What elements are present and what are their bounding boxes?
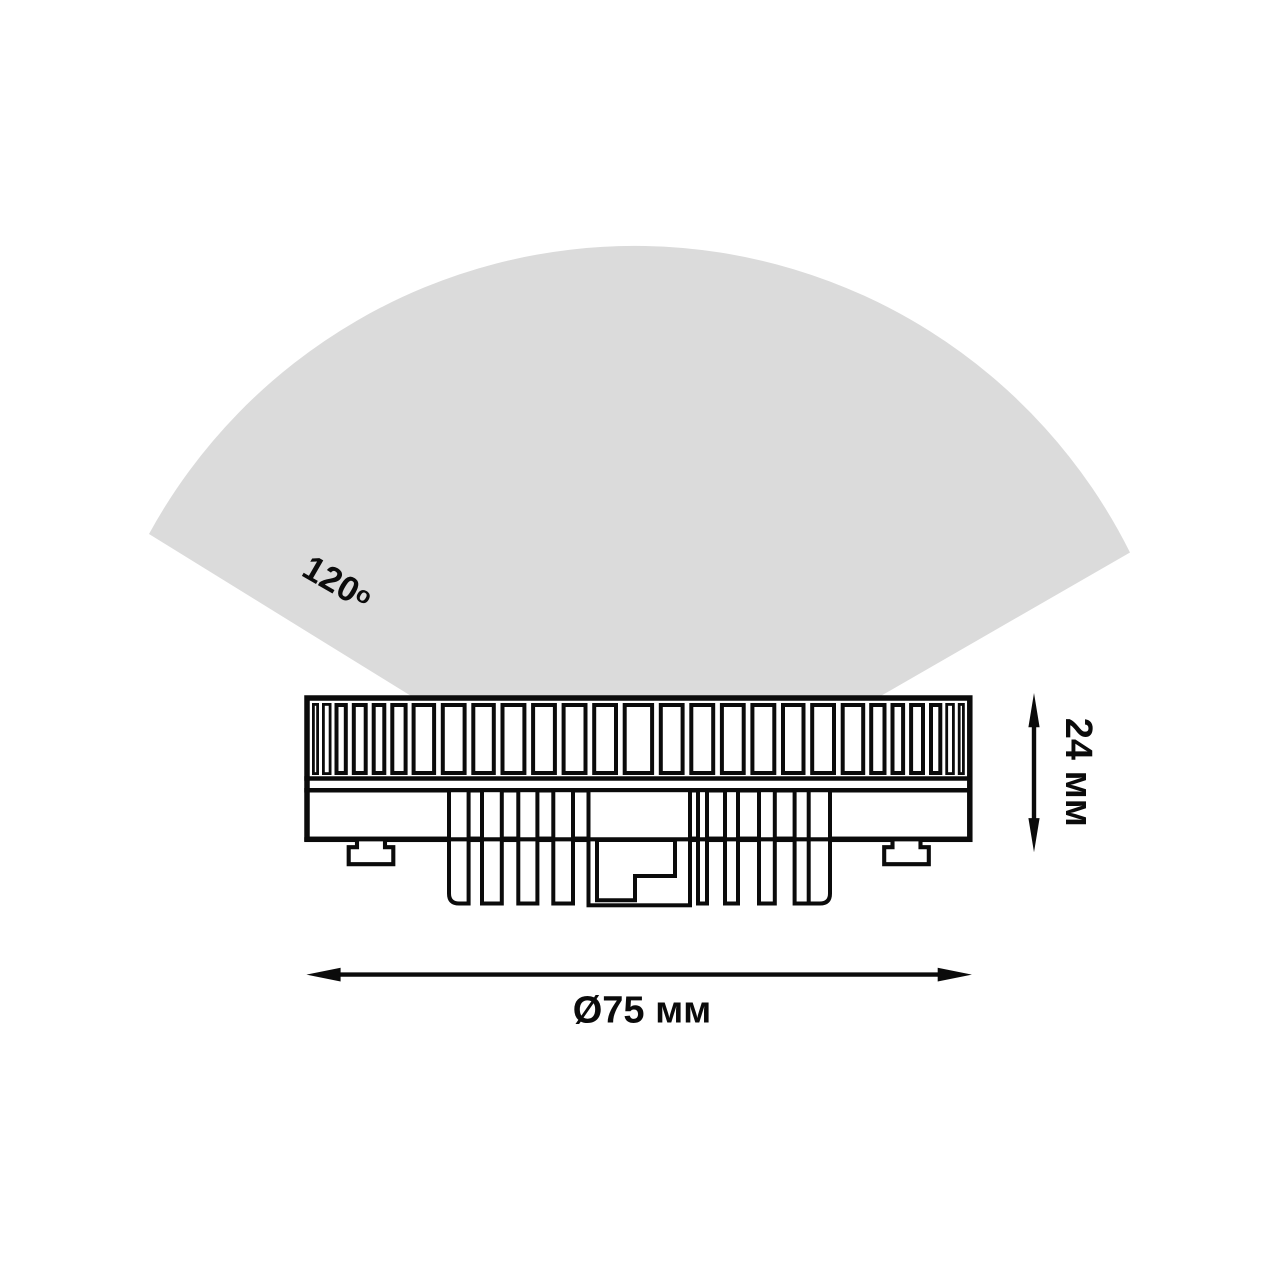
svg-text:24 мм: 24 мм <box>1057 718 1099 827</box>
svg-text:Ø75 мм: Ø75 мм <box>573 990 712 1032</box>
